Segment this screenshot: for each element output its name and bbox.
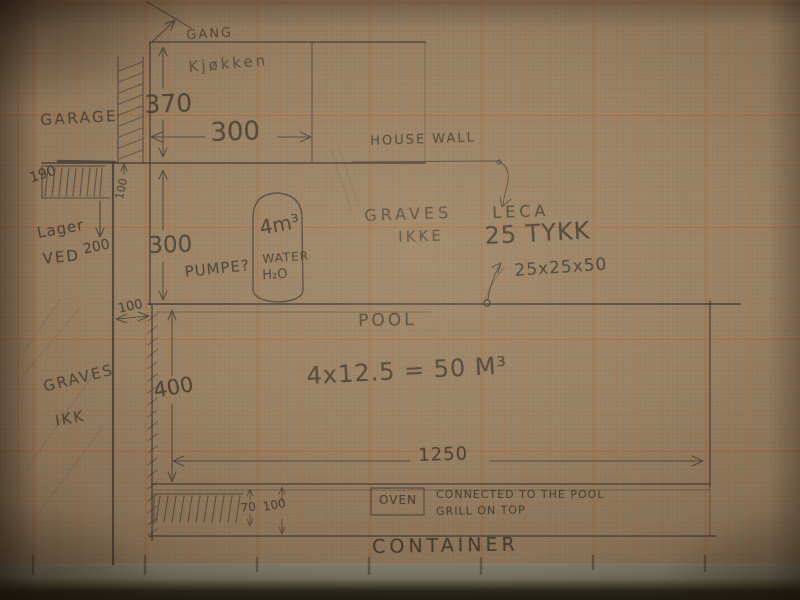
label-ved: VED [42,248,81,267]
label-graves-top-1: GRAVES [364,205,453,224]
house-wall-arrow [352,161,511,207]
label-dim-70: 70 [240,500,256,514]
faint-scribbles [24,147,358,514]
label-tank-volume: 4m³ [258,211,301,238]
label-dim-100-container: 100 [262,497,287,513]
label-dim-370: 370 [144,90,193,117]
gang-diagonal-line [147,2,191,28]
label-oven-note-1: CONNECTED TO THE POOL [436,489,604,500]
label-garage: GARAGE [40,109,118,128]
stray-streaks [331,147,358,212]
label-dim-300-vertical: 300 [148,233,193,258]
gang-arrow [153,20,175,41]
photographed-sketch: GANG Kjøkken 370 300 HOUSE WALL GARAGE 1… [0,0,800,600]
pencil-sketch [0,0,800,600]
label-gang: GANG [186,27,233,42]
wall-junction-blob [484,300,490,306]
grid-edge-marks [33,556,705,574]
bottom-ledge-hatches [156,496,240,522]
garage-wall-100-arrow [121,164,127,174]
dimension-arrows [96,47,703,534]
graves-area-scribbles [24,300,102,514]
label-container: CONTAINER [372,535,519,557]
label-oven: OVEN [379,494,417,506]
annotation-arrows [147,2,511,299]
label-25-tykk: 25 TYKK [484,218,591,248]
label-dim-300-kitchen: 300 [210,118,261,146]
inner-wall-hatches [119,62,142,159]
label-tank-h2o: H₂O [262,268,288,282]
label-dim-1250: 1250 [418,445,468,465]
label-house-wall: HOUSE WALL [370,131,476,148]
label-oven-note-2: GRILL ON TOP [436,504,526,517]
label-graves-top-2: IKKE [398,228,444,245]
label-pool: POOL [358,312,417,330]
wood-storage-arrow [96,201,104,237]
leca-pool-arrow-sketch [485,268,504,299]
label-tank-water: WATER [262,250,309,265]
house-wall-thick [58,161,115,162]
orange-edge-stubs [33,556,705,574]
